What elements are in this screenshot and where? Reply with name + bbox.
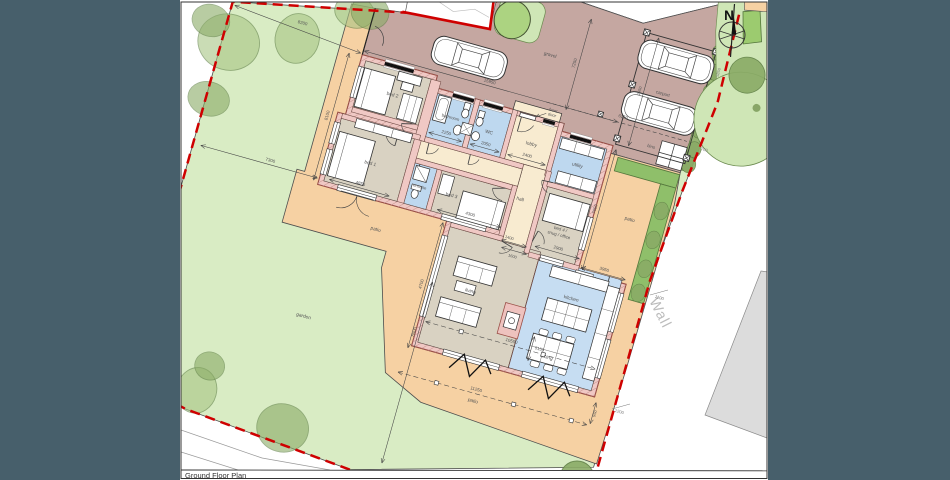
svg-text:Ground Floor Plan: Ground Floor Plan bbox=[185, 471, 246, 480]
svg-text:N: N bbox=[724, 8, 734, 23]
